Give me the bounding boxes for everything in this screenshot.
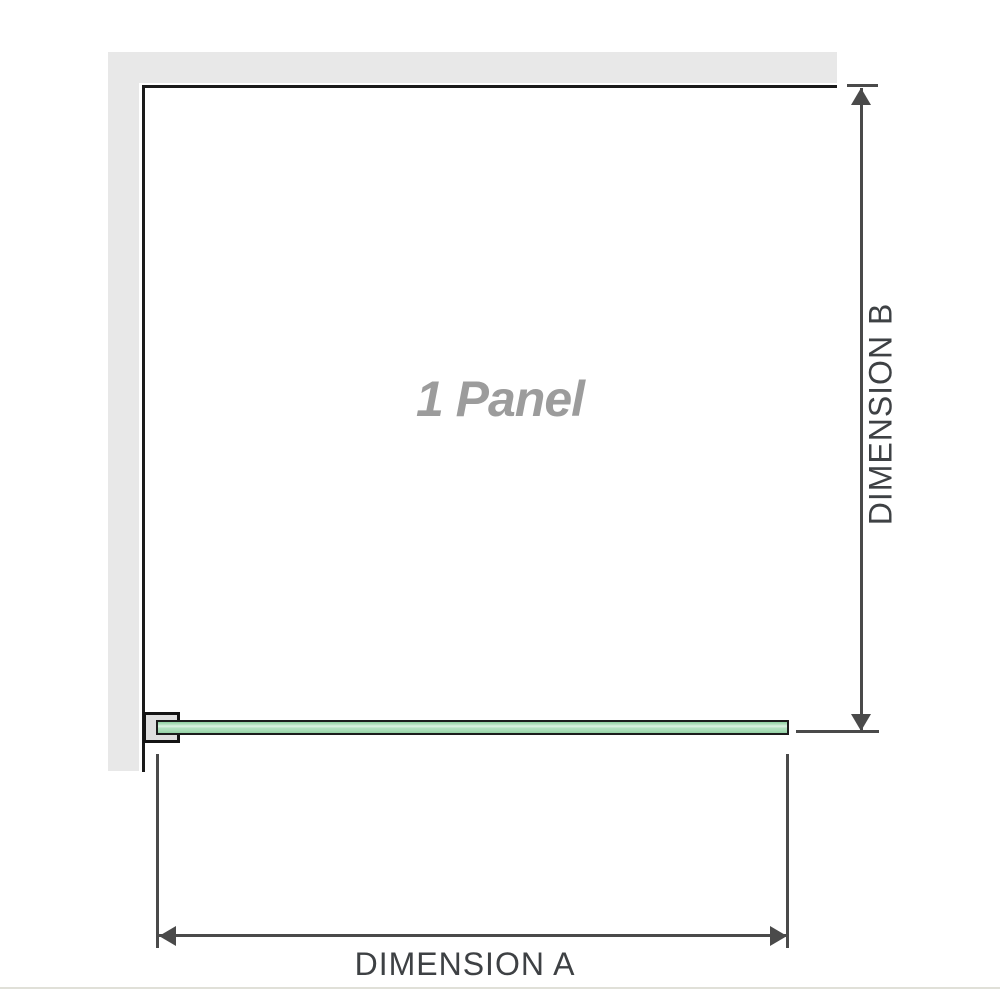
arrow-down-icon (851, 714, 871, 731)
wall-top (108, 52, 837, 83)
dimension-b-label: DIMENSION B (863, 303, 900, 526)
arrow-right-icon (770, 926, 787, 946)
dimension-a-left-extension-line (156, 754, 159, 948)
dimension-a-right-extension-line (786, 754, 789, 948)
page-bottom-divider (0, 987, 1000, 989)
dimension-a-line (159, 934, 787, 937)
arrow-left-icon (159, 926, 176, 946)
enclosure-frame-top-line (142, 85, 837, 88)
dimension-b-top-tick (847, 84, 878, 87)
arrow-up-icon (851, 88, 871, 105)
enclosure-frame-left-line (142, 85, 145, 772)
panel-count-label: 1 Panel (416, 370, 584, 428)
wall-left (108, 52, 139, 771)
diagram-canvas: 1 Panel DIMENSION B DIMENSION A (0, 0, 1000, 1000)
glass-panel (156, 720, 789, 735)
dimension-a-label: DIMENSION A (355, 946, 576, 983)
